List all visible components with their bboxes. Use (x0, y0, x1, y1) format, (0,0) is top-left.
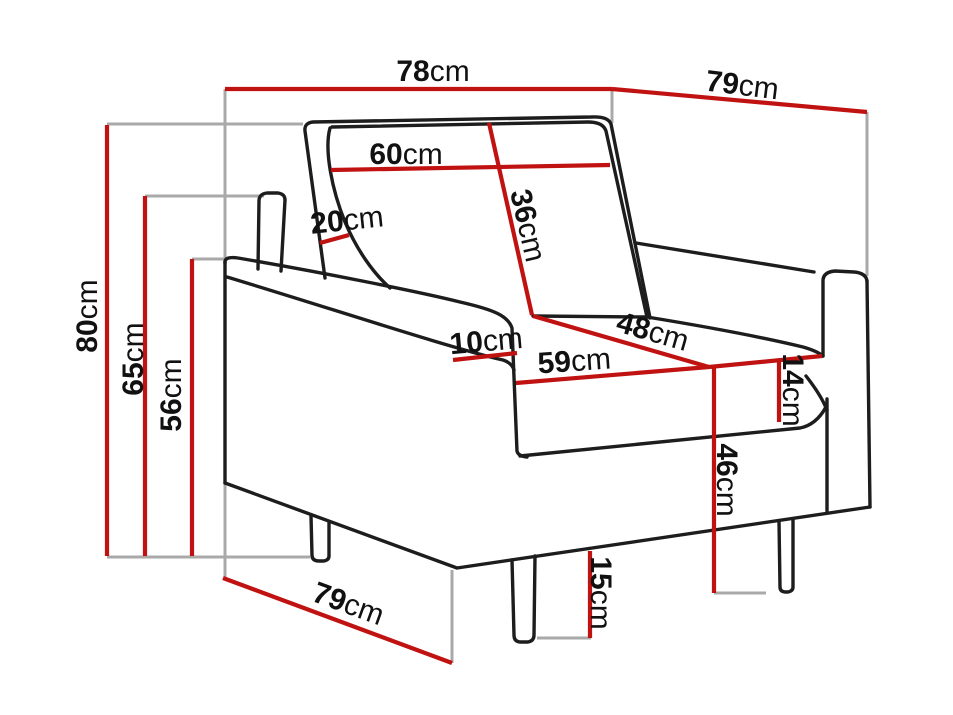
dim-label-back-panel-height: 65cm (117, 322, 150, 395)
chair-front-left-leg (311, 516, 329, 561)
chair-base-bottom-edge (225, 483, 870, 568)
chair-back-side-panel (258, 193, 285, 271)
dim-label-leg-height: 15cm (584, 556, 617, 629)
dim-label-seat-width: 59cm (537, 343, 612, 381)
dim-label-overall-height: 80cm (71, 279, 104, 352)
diagram-canvas: 78cm 79cm 60cm 20cm 36cm 80cm 65cm 56cm … (0, 0, 953, 715)
dimension-lines (107, 89, 867, 663)
dim-label-overall-width: 78cm (396, 55, 469, 88)
chair-right-armrest (823, 271, 867, 356)
dim-label-back-cushion-width: 60cm (369, 138, 442, 171)
armchair-dimension-diagram: 78cm 79cm 60cm 20cm 36cm 80cm 65cm 56cm … (0, 0, 953, 715)
dim-label-armrest-height: 56cm (155, 358, 188, 431)
dim-label-armrest-width: 10cm (448, 322, 524, 361)
dim-label-seat-height: 46cm (710, 443, 743, 516)
chair-back-right-leg (779, 519, 793, 592)
dim-label-backrest-thickness: 20cm (309, 200, 385, 240)
chair-side-top-edge (636, 243, 814, 272)
chair-right-edge (867, 281, 870, 507)
dim-label-cushion-thickness: 14cm (776, 353, 809, 426)
chair-front-right-leg (512, 556, 535, 642)
guide-lines (107, 89, 867, 663)
